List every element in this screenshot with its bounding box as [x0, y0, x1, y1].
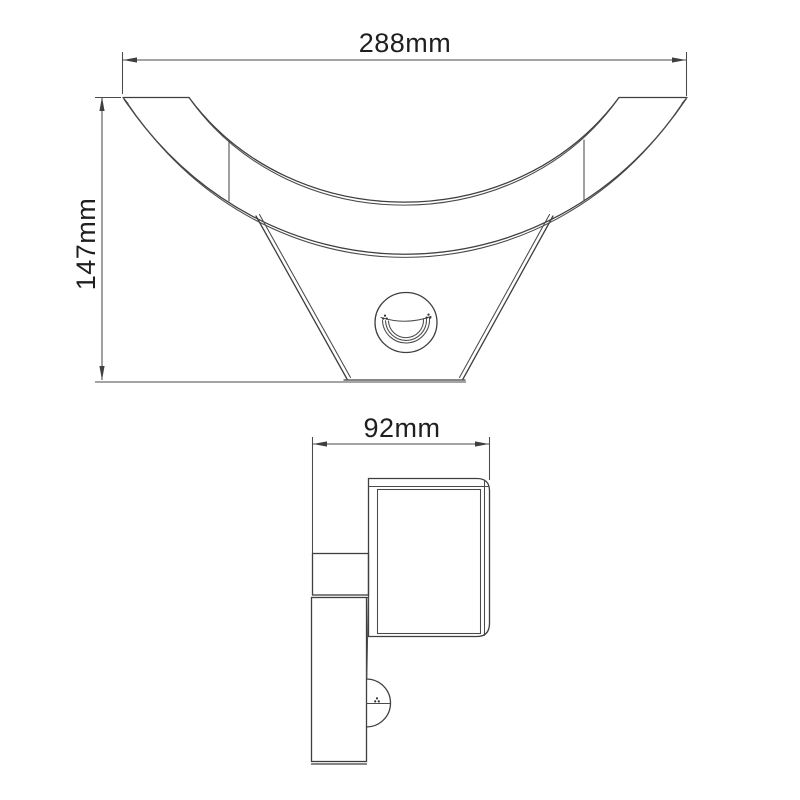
arrowhead-right	[475, 441, 489, 446]
side-motion-sensor	[367, 679, 391, 727]
sensor-lens-arc-1	[383, 319, 430, 344]
head-outer-box	[369, 479, 490, 637]
mount-bracket	[313, 554, 369, 596]
sensor-screw-right	[426, 314, 432, 319]
head-inner-panel	[378, 490, 481, 634]
wall-column	[312, 598, 367, 762]
lamp-side-outline	[312, 479, 490, 765]
arrowhead-left	[123, 57, 137, 62]
upper-curve	[189, 98, 619, 203]
arrowhead-right	[672, 57, 686, 62]
sensor-lens-arc-3	[389, 319, 424, 337]
upper-curve-inner-line	[191, 101, 617, 206]
arrowhead-top	[99, 97, 104, 111]
front-view: 288mm 147mm	[71, 28, 687, 382]
sensor-screw-side	[374, 697, 380, 702]
side-depth-dimension: 92mm	[313, 413, 490, 553]
technical-drawing-page: 288mm 147mm	[0, 0, 800, 800]
height-dimension-label: 147mm	[71, 198, 101, 291]
outer-curve-inner-line	[127, 103, 683, 258]
arrowhead-left	[313, 441, 327, 446]
side-view: 92mm	[312, 413, 490, 764]
width-dimension-label: 288mm	[359, 28, 452, 58]
front-width-dimension: 288mm	[123, 28, 687, 96]
depth-dimension-label: 92mm	[363, 413, 440, 443]
front-motion-sensor	[375, 293, 437, 353]
arrowhead-bottom	[99, 366, 104, 380]
wall-light-technical-drawing: 288mm 147mm	[0, 0, 800, 800]
